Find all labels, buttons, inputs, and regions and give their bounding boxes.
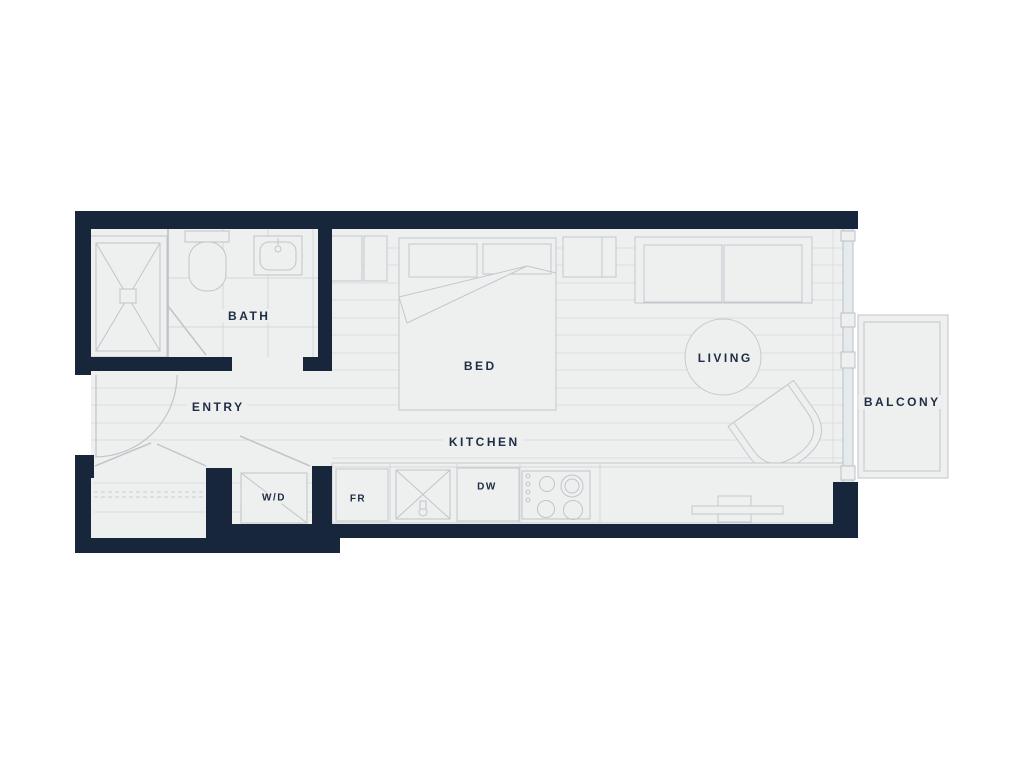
appliance-label-fr: FR — [348, 494, 368, 505]
wardrobe — [330, 236, 387, 281]
room-label-entry: ENTRY — [186, 400, 247, 414]
nightstand — [563, 237, 616, 277]
wall-closet-divider — [206, 468, 232, 540]
room-label-kitchen: KITCHEN — [443, 435, 522, 449]
bath-sink — [254, 236, 302, 275]
toilet — [185, 231, 229, 291]
room-label-balcony: BALCONY — [858, 395, 943, 409]
pillow — [409, 244, 477, 277]
wall-bath-bottom — [75, 357, 232, 371]
appliance-label-wd: W/D — [260, 493, 288, 504]
dishwasher — [457, 468, 519, 521]
wall-bath-divider-foot — [303, 357, 332, 371]
room-label-living: LIVING — [692, 351, 756, 365]
wall-stub-entry — [75, 455, 94, 478]
wall-wd-kitchen-divider — [312, 466, 332, 538]
wall-top — [75, 211, 858, 229]
appliance-label-dw: DW — [475, 482, 499, 493]
wall-left-upper — [75, 211, 91, 375]
sofa — [635, 237, 812, 303]
wall-bottom-left — [75, 538, 340, 553]
wall-bath-divider — [318, 229, 332, 371]
shower — [89, 236, 167, 357]
bed — [399, 238, 556, 410]
room-label-bath: BATH — [223, 309, 274, 323]
kitchen-sink — [396, 470, 450, 519]
floor-plan-drawing — [0, 0, 1024, 768]
wall-corner-right — [833, 482, 858, 538]
room-label-bed: BED — [458, 359, 499, 373]
floor-plan: BATH ENTRY BED KITCHEN LIVING BALCONY W/… — [0, 0, 1024, 768]
